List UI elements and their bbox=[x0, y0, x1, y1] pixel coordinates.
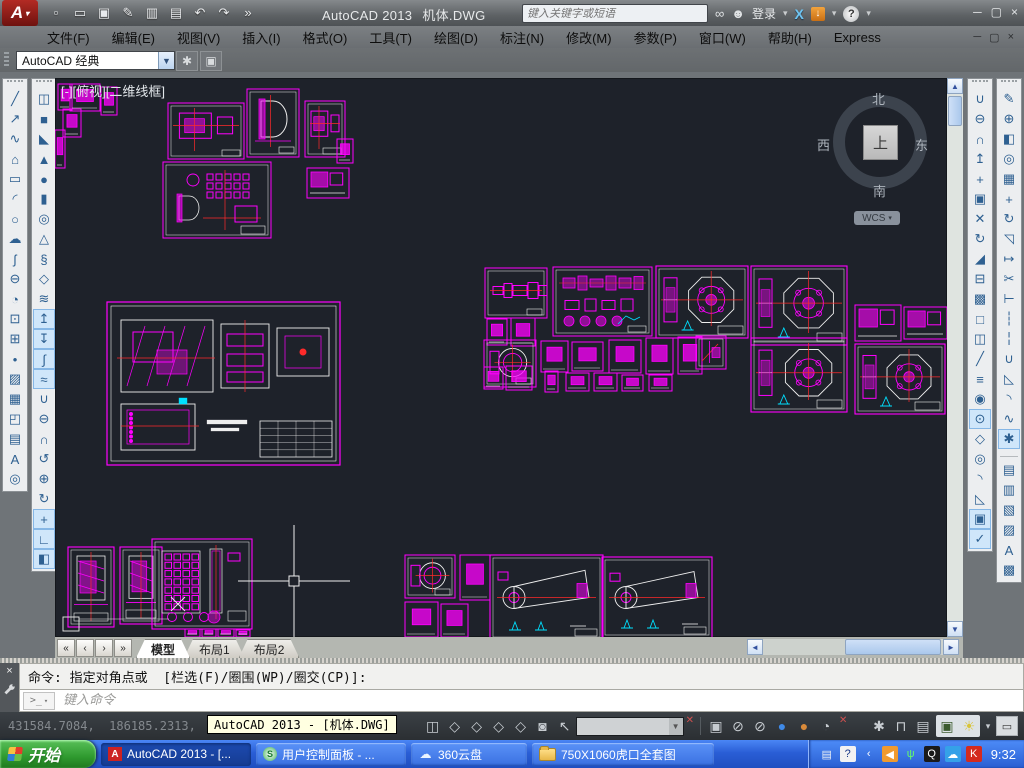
convert-to-solid-tool[interactable]: ▣ bbox=[969, 509, 991, 529]
drawing-sheet bbox=[405, 555, 455, 598]
group-tool[interactable]: ◎ bbox=[4, 469, 26, 489]
annotation-cube-icon[interactable]: ◫ bbox=[422, 715, 444, 737]
child-close-button[interactable]: × bbox=[1008, 31, 1014, 44]
send-under-tool[interactable]: ▨ bbox=[998, 520, 1020, 540]
combo-close-icon[interactable]: ✕ bbox=[686, 712, 694, 726]
horizontal-scroll-track[interactable] bbox=[763, 639, 943, 655]
title-search-area: ∞ ☻ 登录 ▾ X ↓ ▾ ? ▾ bbox=[522, 4, 871, 23]
sphere-orange-icon[interactable]: ● bbox=[793, 715, 815, 737]
windows-logo-icon bbox=[7, 747, 23, 761]
free-orbit-tool[interactable]: ⊕ bbox=[33, 469, 55, 489]
copy-faces-tool[interactable]: ⊟ bbox=[969, 269, 991, 289]
extrude-tool[interactable]: ↥ bbox=[33, 309, 55, 329]
drawing-sheet bbox=[490, 555, 603, 637]
system-tray: ▤?‹◀ψQ☁K 9:32 bbox=[808, 740, 1024, 768]
task-label: 用户控制面板 - ... bbox=[282, 746, 375, 763]
drawing-canvas[interactable] bbox=[55, 78, 947, 637]
task-用户控制面板 - ...[interactable]: S用户控制面板 - ... bbox=[256, 743, 406, 766]
drawing-sheet bbox=[202, 629, 216, 637]
ellipse-arc-tool[interactable]: ◔ bbox=[4, 289, 26, 309]
task-label: 360云盘 bbox=[438, 746, 482, 763]
status-view-icons: ▣⊘⊘●●◔ bbox=[705, 715, 837, 737]
draw-toolbar: ╱↗∿⌂▭◜○☁ʃ⊖◔⊡⊞•▨▦◰▤A◎ bbox=[2, 78, 28, 492]
sphere-blue-icon[interactable]: ● bbox=[771, 715, 793, 737]
modeling-toolbar: ◫■◣▲●▮◎△§◇≋↥↧∫≈∪⊖∩↺⊕↻+∟◧ bbox=[31, 78, 57, 572]
drawing-sheet bbox=[485, 268, 547, 318]
polysolid-tool[interactable]: ◫ bbox=[33, 89, 55, 109]
drawing-sheet bbox=[649, 375, 672, 391]
menu-插入I[interactable]: 插入(I) bbox=[231, 28, 291, 47]
status-tooltip: AutoCAD 2013 - [机体.DWG] bbox=[207, 715, 397, 734]
solid-editing-toolbar: ∪⊖∩↥+▣✕↻◢⊟▩□◫╱≡◉⊙◇◎◝◺▣✓ bbox=[967, 78, 993, 552]
menu-绘图D[interactable]: 绘图(D) bbox=[423, 28, 489, 47]
undo-button[interactable]: ↶ bbox=[190, 3, 210, 22]
folder-icon bbox=[539, 748, 556, 761]
menu-窗口W[interactable]: 窗口(W) bbox=[688, 28, 757, 47]
join-tool[interactable]: ∪ bbox=[998, 349, 1020, 369]
drawing-sheet bbox=[855, 344, 945, 414]
isoplane-3-icon[interactable]: ◇ bbox=[488, 715, 510, 737]
signin-caret-icon[interactable]: ▾ bbox=[783, 8, 788, 19]
drawing-sheet bbox=[63, 109, 81, 137]
workspace-settings-button[interactable]: ✱ bbox=[176, 51, 198, 71]
drawing-sheet bbox=[107, 302, 340, 465]
close-button[interactable]: × bbox=[1011, 5, 1018, 19]
viewport-controls-label[interactable]: [-][俯视][二维线框] bbox=[61, 81, 165, 100]
minimize-button[interactable]: ─ bbox=[973, 5, 982, 19]
subtract-tool[interactable]: ⊖ bbox=[969, 109, 991, 129]
drawing-sheet bbox=[168, 103, 244, 159]
menu-帮助H[interactable]: 帮助(H) bbox=[757, 28, 823, 47]
drawing-sheet bbox=[460, 555, 490, 600]
torus-tool[interactable]: ◎ bbox=[33, 209, 55, 229]
drawing-sheet bbox=[511, 318, 535, 346]
drawing-sheet bbox=[305, 101, 345, 157]
chevron-down-icon[interactable]: ▼ bbox=[669, 718, 683, 735]
search-input[interactable] bbox=[522, 4, 708, 23]
hatch-tool[interactable]: ▨ bbox=[4, 369, 26, 389]
menu-bar: 文件(F)编辑(E)视图(V)插入(I)格式(O)工具(T)绘图(D)标注(N)… bbox=[0, 26, 1024, 48]
menu-标注N[interactable]: 标注(N) bbox=[489, 28, 555, 47]
tab-nav-3[interactable]: » bbox=[114, 639, 132, 657]
taper-faces-tool[interactable]: ◢ bbox=[969, 249, 991, 269]
stretch-tool[interactable]: ↦ bbox=[998, 249, 1020, 269]
isoplane-4-icon[interactable]: ◇ bbox=[510, 715, 532, 737]
viewcube-east[interactable]: 东 bbox=[915, 135, 928, 154]
text-to-front-tool[interactable]: A bbox=[998, 540, 1020, 560]
crosshair-cursor bbox=[238, 525, 350, 637]
viewcube-north[interactable]: 北 bbox=[872, 89, 885, 108]
save-button[interactable]: ▣ bbox=[94, 3, 114, 22]
more-tools-button[interactable]: » bbox=[238, 3, 258, 22]
hide-objects-icon[interactable]: ⊘ bbox=[749, 715, 771, 737]
drawing-sheet bbox=[185, 629, 200, 637]
interfere-tool[interactable]: ◉ bbox=[969, 389, 991, 409]
color-faces-tool[interactable]: ▩ bbox=[969, 289, 991, 309]
continuous-orbit-tool[interactable]: ↻ bbox=[33, 489, 55, 509]
union-tool[interactable]: ∪ bbox=[33, 389, 55, 409]
viewcube-west[interactable]: 西 bbox=[817, 135, 830, 154]
drawing-sheet bbox=[696, 336, 726, 369]
wcs-menu-button[interactable]: WCS▾ bbox=[854, 211, 900, 225]
thicken-tool[interactable]: ≡ bbox=[969, 369, 991, 389]
tab-模型[interactable]: 模型 bbox=[136, 639, 190, 658]
drawing-sheet bbox=[236, 630, 250, 637]
drawing-sheet bbox=[163, 162, 271, 238]
restore-button[interactable]: ▢ bbox=[991, 5, 1002, 19]
drawing-sheet bbox=[405, 602, 438, 637]
intersect-tool[interactable]: ∩ bbox=[969, 129, 991, 149]
presspull-tool[interactable]: ↧ bbox=[33, 329, 55, 349]
app-logo-button[interactable]: A▾ bbox=[2, 0, 38, 26]
plot-button[interactable]: ▤ bbox=[166, 3, 186, 22]
pyramid-tool[interactable]: △ bbox=[33, 229, 55, 249]
cone-tool[interactable]: ▲ bbox=[33, 149, 55, 169]
menu-编辑E[interactable]: 编辑(E) bbox=[101, 28, 166, 47]
workspace-save-button[interactable]: ▣ bbox=[200, 51, 222, 71]
status-toggle-icons: ◫◇◇◇◇◙↖ bbox=[422, 715, 576, 737]
status-combobox[interactable]: ▼ bbox=[576, 717, 684, 736]
menu-视图V[interactable]: 视图(V) bbox=[166, 28, 231, 47]
toolbar-separator bbox=[1000, 451, 1018, 457]
viewcube-top-face[interactable]: 上 bbox=[863, 125, 898, 160]
command-prompt-icon[interactable]: >_▾ bbox=[23, 692, 55, 710]
break-at-point-tool[interactable]: ┆ bbox=[998, 309, 1020, 329]
sweep-tool[interactable]: ∫ bbox=[33, 349, 55, 369]
help-tray-icon[interactable]: ? bbox=[840, 746, 856, 762]
horizontal-scrollbar[interactable]: ◄ ► bbox=[747, 639, 959, 655]
status-right-icons: ✱⊓▤ bbox=[868, 715, 934, 737]
collapse-icon[interactable]: ‹ bbox=[861, 746, 877, 762]
acad-icon: A bbox=[108, 747, 122, 761]
circle-tool[interactable]: ○ bbox=[4, 209, 26, 229]
layout-tabs: 模型布局1布局2 bbox=[136, 639, 293, 658]
command-input-row: >_▾ bbox=[19, 690, 1024, 712]
command-panel-side: × bbox=[0, 663, 19, 712]
toolbar-grip[interactable] bbox=[36, 80, 52, 88]
drawing-sheet bbox=[553, 267, 652, 336]
window-title: AutoCAD 2013机体.DWG bbox=[322, 5, 486, 24]
menu-工具T[interactable]: 工具(T) bbox=[358, 28, 423, 47]
modify-toolbar: ✎⊕◧◎▦+↻◹↦✂⊢┆╎∪◺◝∿✱▤▥▧▨A▩ bbox=[996, 78, 1022, 583]
tab-布局2[interactable]: 布局2 bbox=[239, 639, 300, 658]
menu-修改M[interactable]: 修改(M) bbox=[555, 28, 623, 47]
quick-access-toolbar: ▫▭▣✎▥▤↶↷» bbox=[46, 3, 258, 22]
extract-edges-tool[interactable]: ◇ bbox=[969, 429, 991, 449]
bring-to-front-tool[interactable]: ▤ bbox=[998, 460, 1020, 480]
drawing-sheet bbox=[218, 629, 234, 637]
offset-faces-tool[interactable]: ▣ bbox=[969, 189, 991, 209]
ellipse-tool[interactable]: ⊖ bbox=[4, 269, 26, 289]
offset-tool[interactable]: ◎ bbox=[998, 149, 1020, 169]
isoplane-2-icon[interactable]: ◇ bbox=[466, 715, 488, 737]
signin-link[interactable]: 登录 bbox=[752, 5, 776, 22]
intersect-tool[interactable]: ∩ bbox=[33, 429, 55, 449]
3d-align-tool[interactable]: ◧ bbox=[33, 549, 55, 569]
drawing-sheet bbox=[307, 168, 349, 198]
drawing-sheet bbox=[152, 539, 252, 629]
rotate-faces-tool[interactable]: ↻ bbox=[969, 229, 991, 249]
drawing-sheet bbox=[247, 89, 299, 157]
copy-tool[interactable]: ⊕ bbox=[998, 109, 1020, 129]
search-icon[interactable]: ∞ bbox=[715, 6, 724, 21]
taskbar-tasks: AAutoCAD 2013 - [...S用户控制面板 - ...☁360云盘7… bbox=[96, 743, 714, 766]
drawing-sheet bbox=[602, 557, 712, 637]
separate-tool[interactable]: ◫ bbox=[969, 329, 991, 349]
scroll-up-button[interactable]: ▲ bbox=[947, 78, 963, 94]
cloud-icon: ☁ bbox=[418, 747, 433, 761]
pan-zoom-icon[interactable]: ↖ bbox=[554, 715, 576, 737]
trim-tool[interactable]: ✂ bbox=[998, 269, 1020, 289]
window-controls: ─▢× bbox=[973, 5, 1018, 19]
box-tool[interactable]: ■ bbox=[33, 109, 55, 129]
table-tool[interactable]: ▤ bbox=[4, 429, 26, 449]
quickview-camera-icon[interactable]: ◙ bbox=[532, 715, 554, 737]
line-tool[interactable]: ╱ bbox=[4, 89, 26, 109]
cylinder-tool[interactable]: ▮ bbox=[33, 189, 55, 209]
toolbar-grip[interactable] bbox=[4, 52, 9, 68]
mirror-tool[interactable]: ◧ bbox=[998, 129, 1020, 149]
fillet-tool[interactable]: ◝ bbox=[998, 389, 1020, 409]
qq-icon[interactable]: Q bbox=[924, 746, 940, 762]
slice-tool[interactable]: ╱ bbox=[969, 349, 991, 369]
tab-nav-1[interactable]: ‹ bbox=[76, 639, 94, 657]
horizontal-scroll-thumb[interactable] bbox=[845, 639, 941, 655]
status-separator bbox=[700, 717, 701, 735]
hatch-to-back-tool[interactable]: ▩ bbox=[998, 560, 1020, 580]
loft-tool[interactable]: ≈ bbox=[33, 369, 55, 389]
drawing-sheet bbox=[751, 266, 847, 345]
scroll-left-button[interactable]: ◄ bbox=[747, 639, 763, 655]
drawing-sheet bbox=[656, 266, 748, 338]
drawing-sheet bbox=[566, 373, 589, 391]
windows-taskbar: 开始 AAutoCAD 2013 - [...S用户控制面板 - ...☁360… bbox=[0, 740, 1024, 768]
task-label: 750X1060虎口全套图 bbox=[561, 746, 676, 763]
start-button[interactable]: 开始 bbox=[0, 740, 96, 768]
drawing-sheet bbox=[622, 375, 643, 391]
clock[interactable]: 9:32 bbox=[991, 747, 1016, 762]
task-AutoCAD 2013 - [...[interactable]: AAutoCAD 2013 - [... bbox=[101, 743, 251, 766]
toolbar-grip[interactable] bbox=[972, 80, 988, 88]
region-tool[interactable]: ◰ bbox=[4, 409, 26, 429]
clean-screen-button[interactable]: ▭ bbox=[996, 716, 1018, 736]
command-line-panel: × 命令: 指定对角点或 [栏选(F)/圈围(WP)/圈交(CP)]: >_▾ bbox=[0, 658, 1024, 712]
workspace-value: AutoCAD 经典 bbox=[22, 52, 99, 69]
sphere-tool[interactable]: ● bbox=[33, 169, 55, 189]
chamfer-edge-tool[interactable]: ◺ bbox=[969, 489, 991, 509]
drawing-sheet bbox=[904, 307, 947, 339]
task-750X1060虎口全套图[interactable]: 750X1060虎口全套图 bbox=[532, 743, 714, 766]
gradient-tool[interactable]: ▦ bbox=[4, 389, 26, 409]
helix-tool[interactable]: § bbox=[33, 249, 55, 269]
tab-nav-0[interactable]: « bbox=[57, 639, 75, 657]
scroll-down-button[interactable]: ▼ bbox=[947, 621, 963, 637]
rectangle-tool[interactable]: ▭ bbox=[4, 169, 26, 189]
cc-caret-icon[interactable]: ▾ bbox=[832, 8, 837, 19]
planar-surface-tool[interactable]: ◇ bbox=[33, 269, 55, 289]
exchange-apps-icon[interactable]: X bbox=[795, 6, 804, 22]
spline-tool[interactable]: ʃ bbox=[4, 249, 26, 269]
move-faces-tool[interactable]: + bbox=[969, 169, 991, 189]
vertical-scroll-thumb[interactable] bbox=[948, 96, 962, 126]
delete-faces-tool[interactable]: ✕ bbox=[969, 209, 991, 229]
offset-edges-tool[interactable]: ◎ bbox=[969, 449, 991, 469]
polygon-tool[interactable]: ⌂ bbox=[4, 149, 26, 169]
document-window-controls: ─▢× bbox=[973, 31, 1024, 44]
command-history-line[interactable]: 命令: 指定对角点或 [栏选(F)/圈围(WP)/圈交(CP)]: bbox=[19, 663, 1024, 690]
move-tool[interactable]: + bbox=[998, 189, 1020, 209]
viewport-overlap-icon[interactable]: ▣ bbox=[705, 715, 727, 737]
toolbar-grip[interactable] bbox=[1001, 80, 1017, 88]
annotation-scale-icon[interactable]: ◔ bbox=[815, 715, 837, 737]
break-tool[interactable]: ╎ bbox=[998, 329, 1020, 349]
tab-nav-2[interactable]: › bbox=[95, 639, 113, 657]
vertical-scrollbar[interactable]: ▲ ▼ bbox=[947, 78, 963, 637]
task-label: AutoCAD 2013 - [... bbox=[127, 747, 231, 761]
isolate-objects-icon[interactable]: ⊘ bbox=[727, 715, 749, 737]
autocad-window: A▾ ▫▭▣✎▥▤↶↷» AutoCAD 2013机体.DWG ∞ ☻ 登录 ▾… bbox=[0, 0, 1024, 768]
explode-tool[interactable]: ✱ bbox=[998, 429, 1020, 449]
workspaces-toolbar: AutoCAD 经典 ▼ ✱ ▣ bbox=[0, 48, 1024, 72]
surface-network-tool[interactable]: ≋ bbox=[33, 289, 55, 309]
help-caret-icon[interactable]: ▾ bbox=[866, 8, 871, 19]
tray-icons: ▤?‹◀ψQ☁K bbox=[819, 746, 982, 762]
status-highlight-group: ▣☀ bbox=[936, 715, 980, 737]
drawing-sheet bbox=[68, 547, 114, 627]
drawing-sheet bbox=[594, 373, 617, 391]
communication-center-icon[interactable]: ↓ bbox=[811, 7, 825, 21]
drawing-sheet bbox=[751, 338, 847, 412]
toolbar-grip[interactable] bbox=[7, 80, 23, 88]
insert-block-tool[interactable]: ⊡ bbox=[4, 309, 26, 329]
status-caret-icon[interactable]: ▾ bbox=[982, 715, 994, 737]
drawing-sheet bbox=[541, 341, 568, 372]
save-as-button[interactable]: ✎ bbox=[118, 3, 138, 22]
child-restore-button[interactable]: ▢ bbox=[989, 31, 999, 44]
bring-above-tool[interactable]: ▧ bbox=[998, 500, 1020, 520]
drawing-sheet bbox=[855, 305, 901, 341]
right-toolbar-dock: ∪⊖∩↥+▣✕↻◢⊟▩□◫╱≡◉⊙◇◎◝◺▣✓ ✎⊕◧◎▦+↻◹↦✂⊢┆╎∪◺◝… bbox=[967, 78, 1022, 583]
model-space-viewport[interactable]: [-][俯视][二维线框] 上 北 西 东 南 WCS▾ bbox=[55, 78, 947, 637]
menu-格式O[interactable]: 格式(O) bbox=[292, 28, 359, 47]
k-player-icon[interactable]: K bbox=[966, 746, 982, 762]
polyline-tool[interactable]: ∿ bbox=[4, 129, 26, 149]
subtract-tool[interactable]: ⊖ bbox=[33, 409, 55, 429]
close-icon[interactable]: × bbox=[6, 666, 12, 677]
array-tool[interactable]: ▦ bbox=[998, 169, 1020, 189]
cloud-360-icon[interactable]: ☁ bbox=[945, 746, 961, 762]
keyboard-icon[interactable]: ▤ bbox=[819, 746, 835, 762]
erase-tool[interactable]: ✎ bbox=[998, 89, 1020, 109]
help-icon[interactable]: ? bbox=[843, 6, 859, 22]
fillet-edge-tool[interactable]: ◝ bbox=[969, 469, 991, 489]
drawing-sheet bbox=[678, 337, 702, 374]
workspace-combobox[interactable]: AutoCAD 经典 ▼ bbox=[16, 51, 175, 70]
redo-button[interactable]: ↷ bbox=[214, 3, 234, 22]
new-button[interactable]: ▫ bbox=[46, 3, 66, 22]
command-input[interactable] bbox=[55, 692, 1023, 709]
menu-Express[interactable]: Express bbox=[823, 30, 892, 45]
chevron-down-icon[interactable]: ▼ bbox=[158, 52, 174, 69]
tab-navigation-buttons: «‹›» bbox=[57, 639, 132, 657]
constrained-orbit-tool[interactable]: ↺ bbox=[33, 449, 55, 469]
drawing-sheet bbox=[487, 319, 507, 345]
hardware-accel-icon[interactable]: ▤ bbox=[912, 715, 934, 737]
status-bulb-icon[interactable]: ☀ bbox=[958, 715, 980, 737]
capture-check-icon[interactable]: ▣ bbox=[936, 715, 958, 737]
rotate-tool[interactable]: ↻ bbox=[998, 209, 1020, 229]
shell-tool[interactable]: □ bbox=[969, 309, 991, 329]
shield-icon: S bbox=[263, 747, 277, 761]
chamfer-tool[interactable]: ◺ bbox=[998, 369, 1020, 389]
back-circle-icon[interactable]: ◀ bbox=[882, 746, 898, 762]
open-button[interactable]: ▭ bbox=[70, 3, 90, 22]
extrude-faces-tool[interactable]: ↥ bbox=[969, 149, 991, 169]
make-block-tool[interactable]: ⊞ bbox=[4, 329, 26, 349]
child-minimize-button[interactable]: ─ bbox=[973, 31, 981, 44]
arc-tool[interactable]: ◜ bbox=[4, 189, 26, 209]
user-icon: ☻ bbox=[731, 6, 745, 21]
union-tool[interactable]: ∪ bbox=[969, 89, 991, 109]
3d-rotate-tool[interactable]: ∟ bbox=[33, 529, 55, 549]
blend-curves-tool[interactable]: ∿ bbox=[998, 409, 1020, 429]
plot-preview-button[interactable]: ▥ bbox=[142, 3, 162, 22]
drawing-sheet bbox=[646, 338, 673, 374]
menu-参数P[interactable]: 参数(P) bbox=[623, 28, 688, 47]
layout-tab-strip: «‹›» 模型布局1布局2 ◄ ► bbox=[55, 637, 963, 658]
status-bar: 431584.7084, 186185.2313, 0.0000 AutoCAD… bbox=[0, 712, 1024, 740]
drawing-sheet bbox=[545, 371, 558, 392]
drawing-sheet bbox=[441, 604, 468, 637]
wireless-signal-icon[interactable]: ψ bbox=[903, 746, 919, 762]
workspace-gear-icon[interactable]: ✱ bbox=[868, 715, 890, 737]
extend-tool[interactable]: ⊢ bbox=[998, 289, 1020, 309]
wedge-tool[interactable]: ◣ bbox=[33, 129, 55, 149]
point-tool[interactable]: • bbox=[4, 349, 26, 369]
task-360云盘[interactable]: ☁360云盘 bbox=[411, 743, 527, 766]
viewcube-south[interactable]: 南 bbox=[873, 181, 886, 200]
scale-tool[interactable]: ◹ bbox=[998, 229, 1020, 249]
construction-line-tool[interactable]: ↗ bbox=[4, 109, 26, 129]
scroll-right-button[interactable]: ► bbox=[943, 639, 959, 655]
tab-布局1[interactable]: 布局1 bbox=[184, 639, 245, 658]
drawing-sheet bbox=[609, 340, 641, 373]
drawing-sheet bbox=[120, 547, 162, 624]
toolbar-lock-icon[interactable]: ⊓ bbox=[890, 715, 912, 737]
drawing-sheet bbox=[572, 342, 603, 371]
imprint-tool[interactable]: ⊙ bbox=[969, 409, 991, 429]
multiline-text-tool[interactable]: A bbox=[4, 449, 26, 469]
check-tool[interactable]: ✓ bbox=[969, 529, 991, 549]
revision-cloud-tool[interactable]: ☁ bbox=[4, 229, 26, 249]
isoplane-1-icon[interactable]: ◇ bbox=[444, 715, 466, 737]
wrench-icon[interactable] bbox=[3, 683, 16, 696]
3d-move-tool[interactable]: + bbox=[33, 509, 55, 529]
menu-文件F[interactable]: 文件(F) bbox=[36, 28, 101, 47]
left-toolbar-dock: ╱↗∿⌂▭◜○☁ʃ⊖◔⊡⊞•▨▦◰▤A◎ ◫■◣▲●▮◎△§◇≋↥↧∫≈∪⊖∩↺… bbox=[2, 78, 57, 572]
send-to-back-tool[interactable]: ▥ bbox=[998, 480, 1020, 500]
group-close-icon[interactable]: ✕ bbox=[839, 712, 847, 726]
title-bar: A▾ ▫▭▣✎▥▤↶↷» AutoCAD 2013机体.DWG ∞ ☻ 登录 ▾… bbox=[0, 0, 1024, 26]
